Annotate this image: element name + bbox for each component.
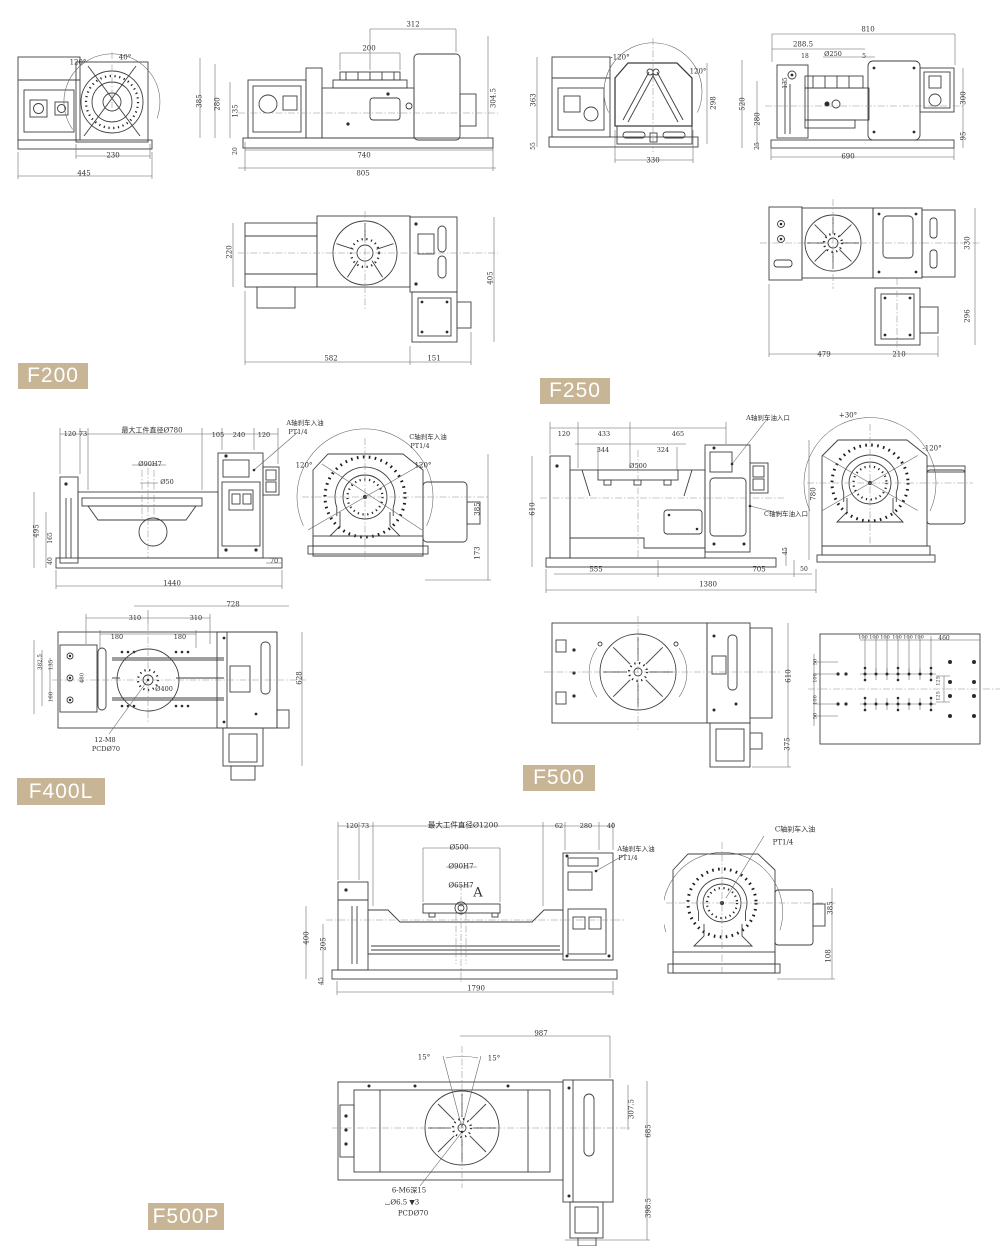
dim-label: 382.5 <box>38 654 44 670</box>
dim-label: 20 <box>233 147 239 155</box>
dim-label: 310 <box>129 615 141 622</box>
dim-label: 5 <box>862 54 866 60</box>
drawing-sheet: F200 F250 F400L F500 F500P 120°40°230445… <box>0 0 1000 1249</box>
dim-label: 805 <box>356 171 369 178</box>
dim-label: 304.5 <box>491 88 498 108</box>
dim-label: C轴刹车入油 <box>775 827 815 834</box>
dim-label: 108 <box>826 949 833 962</box>
dim-label: 12-M8 <box>94 737 115 744</box>
dim-label: 73 <box>79 431 87 438</box>
dim-label: 433 <box>598 431 610 438</box>
dim-label: 100 <box>814 695 819 705</box>
dim-label: 100 <box>858 636 868 641</box>
dim-label: 690 <box>841 154 854 161</box>
dim-label: 288.5 <box>793 42 813 49</box>
dim-label: +30° <box>839 413 857 420</box>
f500-side-view <box>795 396 980 600</box>
dim-label: 100 <box>892 636 902 641</box>
dim-label: 740 <box>357 153 370 160</box>
dim-label: 120° <box>415 463 432 470</box>
dim-label: 135 <box>233 104 240 117</box>
dim-label: 165 <box>48 532 54 543</box>
dim-label: 230 <box>106 153 119 160</box>
dim-label: A <box>473 887 482 900</box>
dim-label: 95 <box>961 132 968 141</box>
dim-label: 40 <box>48 557 54 565</box>
dim-label: 1440 <box>163 581 181 588</box>
dim-label: 300 <box>961 91 968 104</box>
dim-label: 15° <box>418 1055 430 1062</box>
dim-label: 280 <box>580 823 592 830</box>
dim-label: 280 <box>755 112 762 125</box>
dim-label: 312 <box>406 22 419 29</box>
dim-label: 160 <box>49 692 55 703</box>
dim-label: Ø500 <box>629 463 647 470</box>
dim-label: 705 <box>752 567 765 574</box>
dim-label: 480 <box>80 673 86 684</box>
dim-label: 100 <box>914 636 924 641</box>
dim-label: 728 <box>226 602 239 609</box>
f250-side-view <box>735 24 985 200</box>
dim-label: 495 <box>34 524 41 537</box>
dim-label: 987 <box>534 1031 547 1038</box>
dim-label: 344 <box>597 447 609 454</box>
dim-label: 120° <box>296 463 313 470</box>
f250-plan-view <box>750 194 1000 384</box>
dim-label: 120 <box>346 823 358 830</box>
dim-label: PT1/4 <box>773 840 794 847</box>
dim-label: 385 <box>828 901 835 914</box>
dim-label: 520 <box>740 97 747 110</box>
dim-label: 173 <box>475 546 482 559</box>
dim-label: 120 <box>558 431 570 438</box>
dim-label: 151 <box>427 356 440 363</box>
model-badge-f400l: F400L <box>17 778 105 805</box>
dim-label: 180 <box>174 634 186 641</box>
f500p-side-view <box>664 824 844 1018</box>
dim-label: 280 <box>215 97 222 110</box>
dim-label: 330 <box>646 158 659 165</box>
dim-label: 50 <box>814 713 819 719</box>
dim-label: 62 <box>555 823 563 830</box>
dim-label: 15° <box>488 1056 500 1063</box>
dim-label: 120° <box>690 69 707 76</box>
dim-label: 最大工件直径Ø780 <box>121 428 182 435</box>
dim-label: 307.5 <box>629 1099 636 1119</box>
dim-label: 45 <box>319 977 325 985</box>
f400l-side-view <box>288 408 528 608</box>
dim-label: 363 <box>531 93 538 106</box>
dim-label: 296 <box>965 309 972 322</box>
dim-label: A轴刹车油入口 <box>746 415 790 422</box>
dim-label: 55 <box>531 142 537 150</box>
dim-label: Ø500 <box>449 845 468 852</box>
dim-label: 120° <box>70 60 87 67</box>
model-badge-f200: F200 <box>18 363 88 389</box>
model-badge-f250: F250 <box>540 378 610 404</box>
dim-label: 50 <box>814 659 819 665</box>
dim-label: C轴刹车入油 <box>409 434 446 441</box>
dim-label: 610 <box>530 502 537 515</box>
dim-label: 1790 <box>467 986 485 993</box>
dim-label: 240 <box>233 432 245 439</box>
dim-label: 685 <box>646 1124 653 1137</box>
dim-label: 205 <box>321 937 328 950</box>
dim-label: Ø400 <box>155 686 173 693</box>
dim-label: 125 <box>937 676 942 686</box>
dim-label: 582 <box>324 356 337 363</box>
dim-label: 100 <box>903 636 913 641</box>
dim-label: 385 <box>197 94 204 107</box>
dim-label: Ø250 <box>824 51 842 58</box>
dim-label: 45 <box>783 547 789 555</box>
dim-label: 324 <box>657 447 669 454</box>
dim-label: 479 <box>817 352 830 359</box>
dim-label: 135 <box>783 77 789 88</box>
dim-label: 25 <box>755 142 761 150</box>
dim-label: PT1/4 <box>618 855 637 862</box>
dim-label: 375 <box>785 737 792 750</box>
dim-label: 445 <box>77 171 90 178</box>
dim-label: 400 <box>304 931 311 944</box>
dim-label: 120 <box>258 432 270 439</box>
model-badge-f500: F500 <box>523 765 595 791</box>
dim-label: 555 <box>589 567 602 574</box>
dim-label: 330 <box>965 236 972 249</box>
dim-label: 610 <box>786 669 793 682</box>
f200-plan-view <box>198 196 513 386</box>
dim-label: Ø90H7 <box>448 864 473 871</box>
dim-label: 18 <box>801 54 809 60</box>
dim-label: -120° <box>610 55 629 62</box>
dim-label: C轴刹车油入口 <box>764 511 808 518</box>
dim-label: 220 <box>227 245 234 258</box>
f400l-plan-view <box>24 594 314 798</box>
dim-label: 120 <box>64 431 76 438</box>
dim-label: PCDØ70 <box>92 746 120 753</box>
dim-label: 6-M6深15 <box>392 1188 426 1195</box>
dim-label: Ø90H7 <box>138 461 161 468</box>
dim-label: 210 <box>892 352 905 359</box>
dim-label: 70 <box>270 558 278 565</box>
dim-label: A轴刹车入油 <box>286 420 323 427</box>
dim-label: 465 <box>672 431 684 438</box>
dim-label: 180 <box>111 634 123 641</box>
dim-label: 125 <box>937 691 942 701</box>
dim-label: 最大工件直径Ø1200 <box>428 821 498 829</box>
dim-label: PT1/4 <box>288 429 307 436</box>
f250-front-view <box>525 30 750 194</box>
dim-label: 200 <box>362 46 375 53</box>
dim-label: 100 <box>880 636 890 641</box>
dim-label: PCDØ70 <box>398 1211 428 1218</box>
dim-label: 50 <box>800 567 808 573</box>
dim-label: 40° <box>119 55 131 62</box>
dim-label: -120° <box>922 446 941 453</box>
dim-label: 73 <box>361 823 369 830</box>
dim-label: A轴刹车入油 <box>617 846 654 853</box>
dim-label: 100 <box>814 673 819 683</box>
dim-label: 780 <box>811 487 818 500</box>
dim-label: 628 <box>297 671 304 684</box>
dim-label: 385 <box>475 502 482 515</box>
dim-label: 298 <box>711 96 718 109</box>
dim-label: 398.5 <box>646 1198 653 1218</box>
dim-label: PT1/4 <box>410 443 429 450</box>
dim-label: 135 <box>49 660 55 671</box>
dim-label: 105 <box>212 432 224 439</box>
dim-label: 460 <box>938 636 949 642</box>
dim-label: 310 <box>190 615 202 622</box>
dim-label: 405 <box>488 271 495 284</box>
dim-label: 1380 <box>699 582 717 589</box>
dim-label: Ø50 <box>160 479 174 486</box>
dim-label: ⌴Ø6.5 ▼3 <box>385 1200 420 1207</box>
dim-label: 40 <box>607 823 615 830</box>
dim-label: Ø65H7 <box>448 883 473 890</box>
dim-label: 100 <box>869 636 879 641</box>
model-badge-f500p: F500P <box>148 1203 224 1230</box>
dim-label: 810 <box>861 27 874 34</box>
